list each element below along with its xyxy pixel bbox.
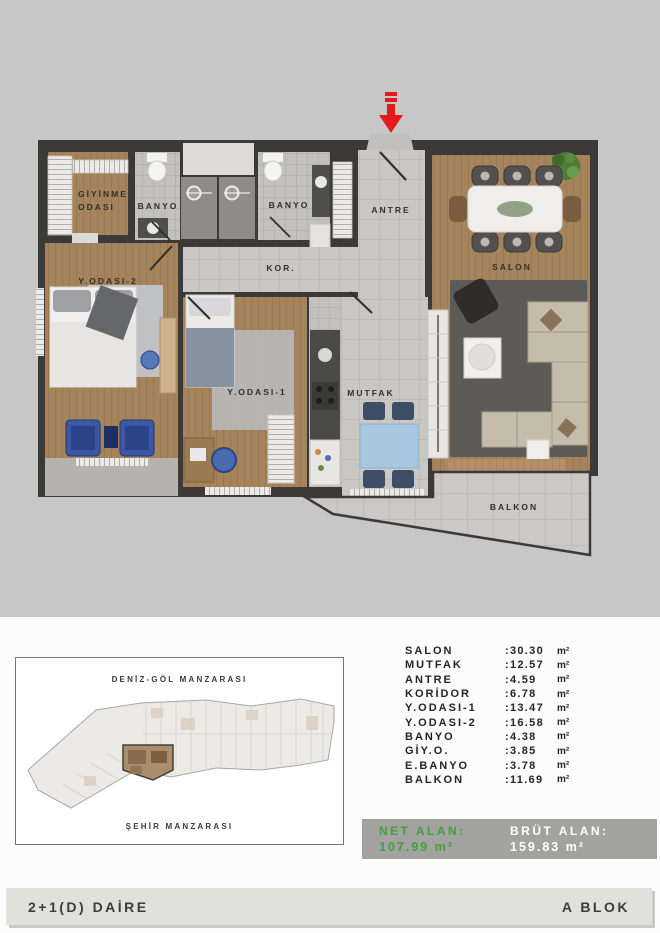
label-banyo-right: BANYO xyxy=(269,200,310,210)
area-summary-box: NET ALAN: 107.99 m² BRÜT ALAN: 159.83 m² xyxy=(362,819,657,859)
label-mutfak: MUTFAK xyxy=(347,388,394,398)
apartment-plan-page: GİYİNME ODASI BANYO BANYO ANTRE KOR. Y.O… xyxy=(0,0,660,933)
label-y-odasi-1: Y.ODASI-1 xyxy=(227,387,287,397)
site-plan-panel: DENİZ-GÖL MANZARASI ŞEHİR MANZARASI xyxy=(15,657,344,845)
entrance-landing xyxy=(366,134,414,152)
table-row: SALON:30.30m² xyxy=(405,644,569,658)
table-row: GİY.O.:3.85m² xyxy=(405,744,569,758)
site-plan-graphic xyxy=(16,658,343,844)
table-row: BALKON:11.69m² xyxy=(405,773,569,787)
antre-closet xyxy=(333,162,352,238)
label-banyo-left: BANYO xyxy=(138,201,179,211)
entrance-arrow xyxy=(379,92,403,133)
room-banyo-left xyxy=(135,152,180,240)
table-row: ANTRE:4.59m² xyxy=(405,673,569,687)
label-giyinme-odasi: GİYİNME ODASI xyxy=(78,188,128,213)
left-window xyxy=(36,288,44,356)
label-antre: ANTRE xyxy=(371,205,410,215)
table-row: Y.ODASI-2:16.58m² xyxy=(405,715,569,729)
table-row: KORİDOR:6.78m² xyxy=(405,687,569,701)
footer-bar: 2+1(D) DAİRE A BLOK xyxy=(6,888,652,925)
table-row: BANYO:4.38m² xyxy=(405,730,569,744)
table-row: Y.ODASI-1:13.47m² xyxy=(405,701,569,715)
label-koridor: KOR. xyxy=(266,263,295,273)
table-row: MUTFAK:12.57m² xyxy=(405,658,569,672)
gross-area-value: 159.83 m² xyxy=(510,840,609,856)
gross-area: BRÜT ALAN: 159.83 m² xyxy=(510,824,609,859)
room-salon xyxy=(428,152,590,472)
shaft xyxy=(183,143,254,175)
label-y-odasi-2: Y.ODASI-2 xyxy=(78,276,138,286)
apartment-type-label: 2+1(D) DAİRE xyxy=(28,899,149,915)
block-label: A BLOK xyxy=(562,899,630,915)
room-area-table: SALON:30.30m² MUTFAK:12.57m² ANTRE:4.59m… xyxy=(405,644,569,787)
gross-area-label: BRÜT ALAN: xyxy=(510,824,609,840)
net-area: NET ALAN: 107.99 m² xyxy=(362,824,510,859)
table-row: E.BANYO:3.78m² xyxy=(405,758,569,772)
kitchen-counter xyxy=(309,297,342,487)
net-area-label: NET ALAN: xyxy=(379,824,510,840)
net-area-value: 107.99 m² xyxy=(379,840,510,856)
label-balkon: BALKON xyxy=(490,502,538,512)
label-salon: SALON xyxy=(492,262,532,272)
floor-plan-graphic xyxy=(0,0,660,620)
room-koridor xyxy=(183,247,425,292)
